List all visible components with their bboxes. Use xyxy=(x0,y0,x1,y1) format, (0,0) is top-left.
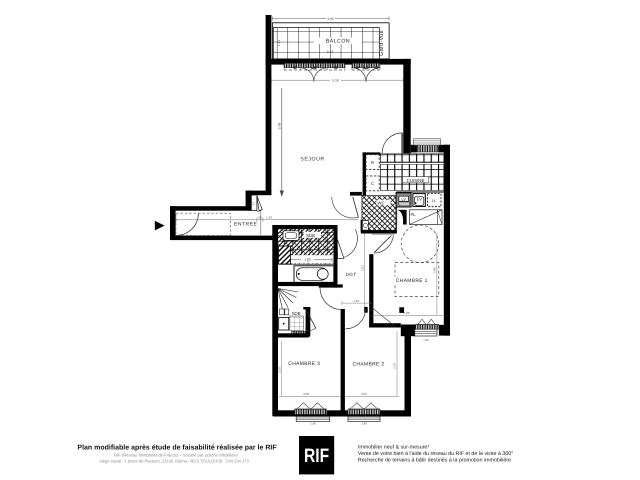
svg-text:Recherche de terrains à bâtir: Recherche de terrains à bâtir destinés à… xyxy=(358,457,511,463)
svg-text:CHAMBRE 3: CHAMBRE 3 xyxy=(288,361,320,367)
svg-text:1.40: 1.40 xyxy=(311,66,317,70)
svg-text:Immobilier neuf & sur-mesure*: Immobilier neuf & sur-mesure* xyxy=(358,444,430,450)
svg-text:R: R xyxy=(371,160,374,165)
svg-text:3.01: 3.01 xyxy=(361,392,367,396)
svg-text:60: 60 xyxy=(355,66,359,70)
svg-text:Plan modifiable après étude de: Plan modifiable après étude de faisabili… xyxy=(77,444,277,452)
svg-text:3.78: 3.78 xyxy=(278,123,282,130)
svg-text:LL: LL xyxy=(432,199,436,203)
svg-text:60: 60 xyxy=(375,66,379,70)
svg-text:CHAMBRE 1: CHAMBRE 1 xyxy=(396,278,428,284)
svg-text:.60: .60 xyxy=(257,216,262,220)
svg-text:2.80: 2.80 xyxy=(433,267,437,273)
svg-text:1.40: 1.40 xyxy=(363,66,369,70)
svg-text:Vente de votre bien à l'aide d: Vente de votre bien à l'aide du réseau d… xyxy=(358,451,513,457)
svg-text:WC: WC xyxy=(378,200,385,205)
svg-text:17: 17 xyxy=(251,202,255,206)
svg-text:CHAMBRE 2: CHAMBRE 2 xyxy=(353,362,385,368)
svg-text:2.91: 2.91 xyxy=(360,265,364,271)
svg-text:LV: LV xyxy=(402,197,407,201)
svg-text:PL: PL xyxy=(411,212,417,217)
svg-text:4.86: 4.86 xyxy=(404,311,410,315)
svg-text:1.41: 1.41 xyxy=(277,40,281,47)
svg-text:SDB: SDB xyxy=(306,233,315,238)
svg-text:DGT: DGT xyxy=(346,272,357,277)
svg-text:Siège social : 1 place de Pave: Siège social : 1 place de Paveurs, 31130… xyxy=(99,458,249,463)
svg-text:EV: EV xyxy=(417,198,423,202)
svg-text:90: 90 xyxy=(293,66,297,70)
svg-text:RIF: RIF xyxy=(304,445,329,467)
svg-text:BALCON: BALCON xyxy=(326,39,350,45)
svg-text:1.80: 1.80 xyxy=(310,421,316,425)
svg-text:2.76: 2.76 xyxy=(393,363,397,369)
svg-text:90: 90 xyxy=(334,66,338,70)
svg-text:1.40: 1.40 xyxy=(353,299,359,303)
svg-text:3.16: 3.16 xyxy=(277,367,281,373)
svg-text:SEJOUR: SEJOUR xyxy=(300,157,324,163)
svg-text:SDE: SDE xyxy=(292,311,301,316)
svg-text:1.40: 1.40 xyxy=(423,338,429,342)
svg-text:ENTREE: ENTREE xyxy=(234,222,257,228)
svg-text:CUISINE: CUISINE xyxy=(407,178,425,183)
svg-text:4.43: 4.43 xyxy=(327,50,334,54)
svg-text:1.40: 1.40 xyxy=(266,216,272,220)
svg-text:1.80: 1.80 xyxy=(361,421,367,425)
svg-text:1.85: 1.85 xyxy=(304,257,310,261)
svg-text:3.08: 3.08 xyxy=(303,392,309,396)
svg-text:9.85: 9.85 xyxy=(327,17,334,21)
svg-text:Gard-Vue: Gard-Vue xyxy=(378,30,385,56)
svg-text:RIF (Réseau Immobilier de Fran: RIF (Réseau Immobilier de France) – Soci… xyxy=(114,453,238,458)
svg-text:C: C xyxy=(371,181,374,186)
svg-text:5.18: 5.18 xyxy=(332,79,339,83)
